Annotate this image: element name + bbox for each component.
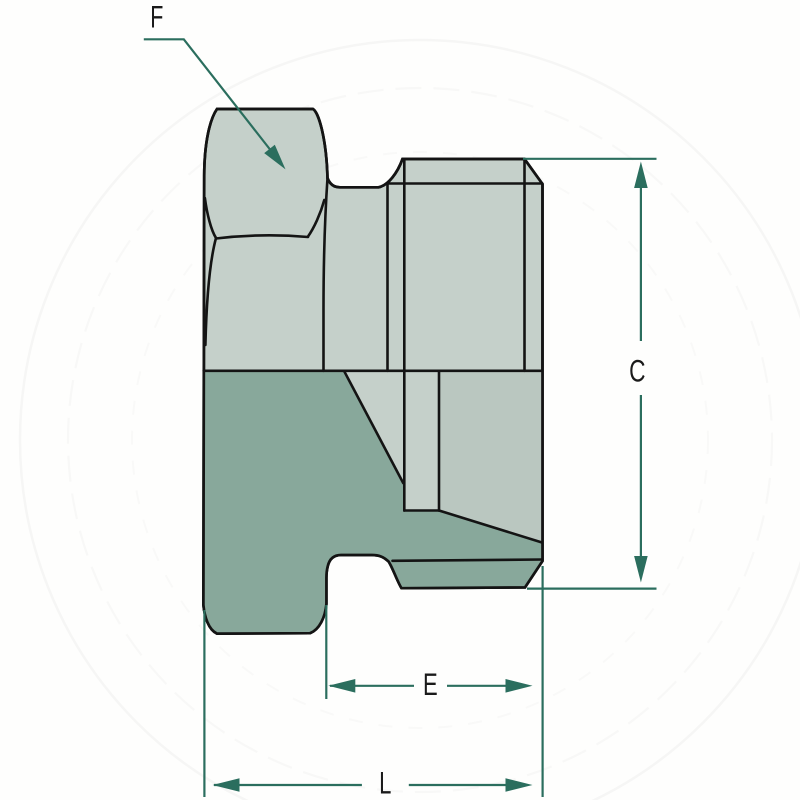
svg-text:C: C: [629, 353, 645, 389]
svg-text:F: F: [150, 0, 163, 34]
svg-text:E: E: [423, 666, 438, 702]
svg-text:L: L: [379, 765, 391, 800]
